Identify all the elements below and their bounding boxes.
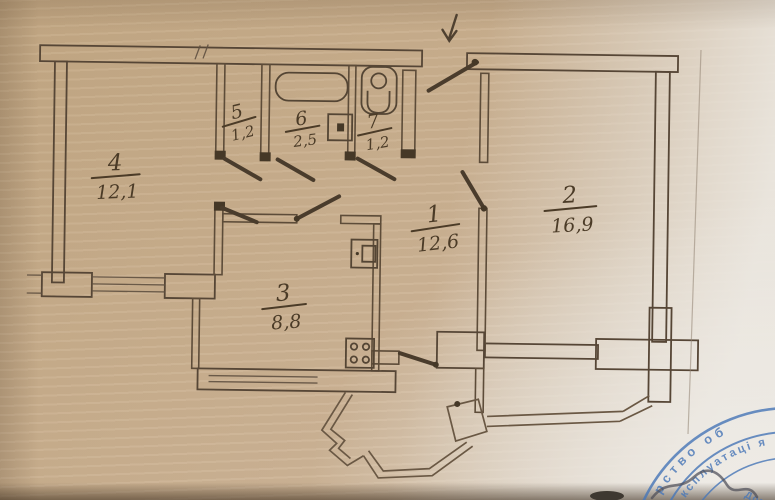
partition-6-7 — [348, 65, 356, 158]
wall-pier-bottom-left — [42, 272, 92, 297]
room-4-label: 4 12,1 — [91, 149, 141, 204]
room-7-label: 7 1,2 — [355, 108, 395, 155]
door-leaf-room5 — [224, 159, 260, 180]
room-2-label: 2 16,9 — [543, 181, 598, 238]
wall-kitchen-top-left — [223, 214, 297, 223]
window-line — [92, 277, 165, 278]
balcony-right-pier — [447, 399, 488, 442]
wall-hall-room2-upper — [480, 73, 489, 162]
room-3-label: 3 8,8 — [260, 279, 308, 335]
svg-text:6: 6 — [294, 107, 309, 130]
wall-right — [652, 72, 670, 342]
balcony — [321, 391, 652, 482]
cross-pier-horizontal — [596, 339, 698, 370]
svg-text:2: 2 — [561, 182, 578, 209]
plan: 1 12,6 2 16,9 3 8,8 4 12,1 5 — [24, 9, 702, 482]
partition-room4-upper — [216, 64, 225, 157]
svg-text:16,9: 16,9 — [551, 213, 594, 237]
window-line — [209, 382, 318, 384]
entrance-door-leaf — [429, 62, 477, 92]
wall-pier-bottom-mid — [165, 274, 215, 299]
washbasin-drain — [337, 123, 344, 131]
svg-text:2,5: 2,5 — [291, 130, 318, 151]
room-labels: 1 12,6 2 16,9 3 8,8 4 12,1 5 — [88, 95, 600, 339]
partition-end-block — [345, 151, 356, 160]
svg-text:12,1: 12,1 — [96, 180, 139, 204]
window-line — [92, 291, 165, 292]
stamp-center-text: Доме — [743, 490, 775, 500]
partition-end-block — [401, 149, 416, 158]
wall-top-left — [40, 45, 422, 66]
balcony-front-rail-inner — [368, 441, 466, 472]
wall-kitchen-bottom — [197, 368, 395, 392]
svg-text:1: 1 — [425, 201, 442, 228]
wall-room2-bottom — [485, 343, 598, 359]
floor-plan-svg: 1 12,6 2 16,9 3 8,8 4 12,1 5 — [0, 0, 775, 500]
svg-text:1,2: 1,2 — [364, 133, 390, 155]
round-stamp: рство об ксплуатаці я Доме — [628, 408, 775, 500]
pencil-mark — [590, 491, 624, 500]
door-leaf-room7 — [357, 159, 394, 180]
wall-top-right — [467, 53, 678, 72]
door-leaf-room6 — [277, 159, 313, 180]
room-1-label: 1 12,6 — [409, 199, 462, 257]
wall-stub-balcony-door — [372, 351, 399, 364]
wall-left — [52, 61, 67, 282]
door-leaf-room2 — [462, 172, 485, 208]
scanned-floor-plan: 1 12,6 2 16,9 3 8,8 4 12,1 5 — [0, 0, 775, 500]
door-leaf-kitchen — [297, 196, 339, 220]
stamp-outer-ring — [628, 408, 775, 500]
wall-kitchen-left — [192, 298, 200, 368]
paper-fold-line — [688, 50, 701, 434]
bathtub-icon — [275, 72, 347, 101]
window-line — [209, 376, 318, 378]
svg-text:1,2: 1,2 — [229, 122, 256, 145]
svg-text:12,6: 12,6 — [416, 230, 460, 256]
partition-5-6 — [261, 64, 270, 159]
balcony-left-parapet-inner — [330, 394, 352, 458]
toilet-icon — [361, 67, 397, 114]
stove-icon — [346, 338, 374, 367]
door-leaves — [220, 55, 489, 368]
balcony-left-parapet — [321, 392, 364, 466]
partition-end-block — [260, 152, 271, 161]
door-leaf-balcony — [400, 353, 436, 365]
wall-kitchen-top-right — [341, 215, 381, 224]
svg-text:3: 3 — [275, 280, 292, 307]
hinge-dot — [454, 401, 460, 407]
wall-hall-room2-lower — [477, 208, 487, 350]
svg-text:8,8: 8,8 — [270, 310, 302, 334]
door-leaf-room4 — [222, 208, 257, 222]
wall-toilet-right — [402, 70, 416, 154]
room-6-label: 6 2,5 — [283, 106, 322, 152]
window-line — [92, 284, 165, 285]
balcony-room2-parapet — [487, 393, 652, 428]
partition-room4-lower — [214, 205, 223, 275]
entrance-arrow-icon — [442, 15, 456, 41]
svg-text:4: 4 — [106, 150, 123, 177]
